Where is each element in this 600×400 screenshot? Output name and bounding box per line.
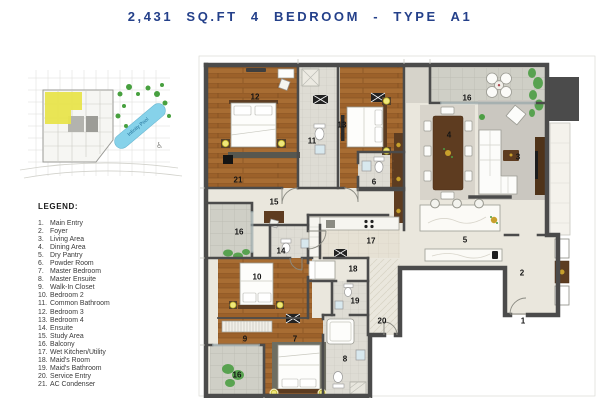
legend-item-label: Walk-In Closet [50, 284, 95, 292]
legend-item-label: Bedroom 2 [50, 292, 84, 300]
room-label-17: 17 [367, 237, 376, 246]
floorplan-page: 2,431 SQ.FT 4 BEDROOM - TYPE A1 Infinity… [0, 0, 600, 400]
legend-item-label: Master Ensuite [50, 276, 96, 284]
legend-item-label: AC Condenser [50, 381, 95, 389]
floor-plan-drawing [198, 53, 598, 398]
walkin-closet [222, 321, 272, 332]
legend-item-number: 17. [38, 349, 50, 357]
building-core-2 [86, 116, 98, 132]
site-boundary-curves [20, 163, 182, 178]
room-label-10: 10 [253, 273, 262, 282]
room-label-12: 12 [251, 93, 260, 102]
legend-item: 1. Main Entry [38, 220, 196, 228]
legend-item-label: Service Entry [50, 373, 91, 381]
legend-item-number: 21. [38, 381, 50, 389]
legend-item-number: 10. [38, 292, 50, 300]
legend-item-label: Living Area [50, 236, 84, 244]
legend-item-number: 15. [38, 333, 50, 341]
room-label-18: 18 [349, 265, 358, 274]
legend-item: 9. Walk-In Closet [38, 284, 196, 292]
legend-item: 13. Bedroom 4 [38, 317, 196, 325]
legend-item: 21. AC Condenser [38, 381, 196, 389]
legend-item: 4. Dining Area [38, 244, 196, 252]
legend-item-label: Maid's Bathroom [50, 365, 102, 373]
room-label-1: 1 [521, 317, 525, 326]
room-label-16: 16 [235, 228, 244, 237]
legend-item-number: 2. [38, 228, 50, 236]
legend-item: 6. Powder Room [38, 260, 196, 268]
room-label-15: 15 [270, 198, 279, 207]
accessibility-icon: ♿ [156, 141, 163, 150]
legend-item-label: Powder Room [50, 260, 94, 268]
legend-list: 1. Main Entry 2. Foyer 3. Living Area 4.… [38, 220, 196, 389]
legend-item: 2. Foyer [38, 228, 196, 236]
room-label-14: 14 [277, 247, 286, 256]
dry-pantry-island [420, 199, 502, 261]
room-label-5: 5 [463, 236, 467, 245]
legend: LEGEND: 1. Main Entry 2. Foyer 3. Living… [38, 202, 196, 389]
hallway-sideboard [394, 133, 403, 223]
legend-item: 12. Bedroom 3 [38, 309, 196, 317]
room-label-9: 9 [243, 335, 247, 344]
room-label-19: 19 [351, 297, 360, 306]
legend-item-number: 20. [38, 373, 50, 381]
legend-item-number: 4. [38, 244, 50, 252]
legend-item-number: 12. [38, 309, 50, 317]
legend-item-number: 3. [38, 236, 50, 244]
legend-item-number: 11. [38, 300, 50, 308]
legend-item: 15. Study Area [38, 333, 196, 341]
legend-item-label: Dry Pantry [50, 252, 83, 260]
legend-item-label: Wet Kitchen/Utility [50, 349, 106, 357]
legend-item-label: Dining Area [50, 244, 86, 252]
master-bedroom-furniture [270, 342, 327, 398]
room-label-21: 21 [234, 176, 243, 185]
room-label-20: 20 [378, 317, 387, 326]
legend-item-label: Balcony [50, 341, 75, 349]
legend-item: 10. Bedroom 2 [38, 292, 196, 300]
legend-item-label: Main Entry [50, 220, 83, 228]
right-ledge [550, 123, 570, 235]
legend-item-label: Maid's Room [50, 357, 90, 365]
legend-item: 18. Maid's Room [38, 357, 196, 365]
legend-item: 8. Master Ensuite [38, 276, 196, 284]
legend-item-label: Bedroom 4 [50, 317, 84, 325]
legend-item-label: Bedroom 3 [50, 309, 84, 317]
legend-item-label: Ensuite [50, 325, 73, 333]
maids-room-furniture [309, 261, 335, 279]
room-label-7: 7 [293, 335, 297, 344]
legend-item-label: Study Area [50, 333, 84, 341]
room-label-11: 11 [308, 137, 316, 146]
room-label-2: 2 [520, 269, 524, 278]
legend-item-label: Common Bathroom [50, 300, 110, 308]
ac-condenser [223, 155, 233, 164]
utility-shaft [406, 65, 430, 103]
legend-item: 11. Common Bathroom [38, 300, 196, 308]
room-label-6: 6 [372, 178, 376, 187]
floor-plan: 1211136211643515141610171819209781621 [198, 53, 598, 398]
room-label-16: 16 [463, 94, 472, 103]
balcony-top-floor [430, 68, 545, 103]
legend-item: 5. Dry Pantry [38, 252, 196, 260]
legend-item-number: 19. [38, 365, 50, 373]
room-label-3: 3 [516, 153, 520, 162]
legend-item-number: 7. [38, 268, 50, 276]
key-plan: Infinity Pool ♿ [8, 64, 190, 188]
legend-item-number: 9. [38, 284, 50, 292]
legend-item: 16. Balcony [38, 341, 196, 349]
legend-item-number: 1. [38, 220, 50, 228]
legend-heading: LEGEND: [38, 202, 196, 211]
legend-item-number: 18. [38, 357, 50, 365]
legend-item: 14. Ensuite [38, 325, 196, 333]
legend-item-number: 14. [38, 325, 50, 333]
room-label-16: 16 [233, 371, 242, 380]
legend-item-number: 16. [38, 341, 50, 349]
legend-item-number: 6. [38, 260, 50, 268]
legend-item: 19. Maid's Bathroom [38, 365, 196, 373]
legend-item-number: 8. [38, 276, 50, 284]
legend-item: 20. Service Entry [38, 373, 196, 381]
legend-item-number: 5. [38, 252, 50, 260]
room-label-8: 8 [343, 355, 347, 364]
room-label-13: 13 [338, 121, 347, 130]
legend-item-number: 13. [38, 317, 50, 325]
legend-item: 3. Living Area [38, 236, 196, 244]
legend-item: 17. Wet Kitchen/Utility [38, 349, 196, 357]
corner-wall-block [547, 77, 579, 121]
legend-item-label: Master Bedroom [50, 268, 101, 276]
legend-item-label: Foyer [50, 228, 68, 236]
page-title: 2,431 SQ.FT 4 BEDROOM - TYPE A1 [0, 9, 600, 24]
legend-item: 7. Master Bedroom [38, 268, 196, 276]
room-label-4: 4 [447, 131, 451, 140]
